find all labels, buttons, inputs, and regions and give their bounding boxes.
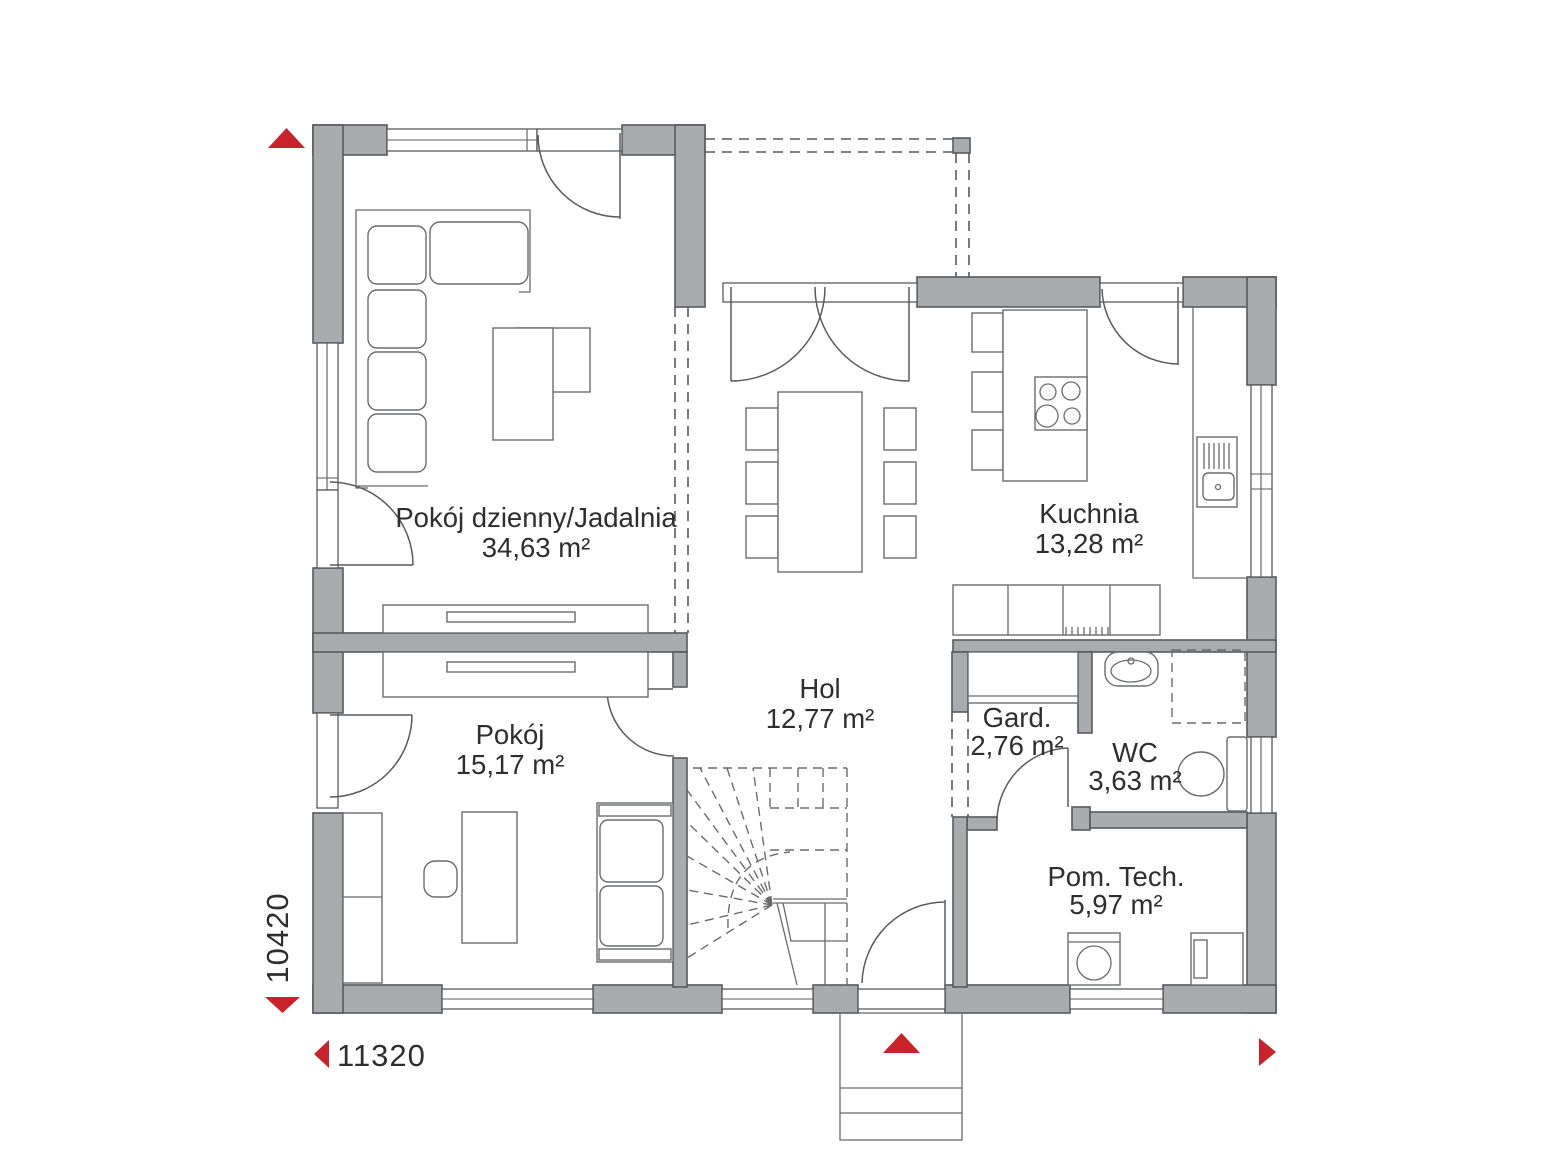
desk — [462, 812, 517, 943]
wall-divider-return — [673, 652, 687, 687]
wall-terrace-side — [675, 125, 705, 307]
toilet-bowl — [1178, 752, 1224, 796]
kitchen-stool-1 — [972, 313, 1003, 352]
wall-nook-bottom — [967, 817, 997, 830]
label-kitchen-name: Kuchnia — [1039, 498, 1139, 529]
wall-right-lower — [1247, 813, 1276, 1013]
sideboard-lower — [383, 652, 648, 697]
living-room-furniture — [356, 210, 648, 697]
desk-chair — [424, 861, 457, 897]
label-room-name: Pokój — [476, 719, 545, 750]
room-wardrobe — [343, 813, 382, 983]
marker-triangle-up-top-left — [268, 128, 305, 148]
opening-room-door-left — [317, 713, 338, 808]
terrace-post — [953, 138, 970, 153]
label-utility-name: Pom. Tech. — [1047, 861, 1184, 892]
stairs-lower-steps — [773, 899, 847, 985]
marker-triangle-left-width — [314, 1040, 329, 1068]
wall-left-upper — [313, 125, 343, 343]
floor-plan-svg: Pokój dzienny/Jadalnia 34,63 m² Kuchnia … — [0, 0, 1556, 1167]
wall-room-hall — [673, 758, 687, 987]
kitchen-sink-basin — [1203, 473, 1234, 500]
wall-closet-left — [952, 652, 968, 712]
dining-table — [778, 392, 862, 572]
porch-steps — [840, 1088, 962, 1113]
wall-right-upper — [1247, 277, 1276, 385]
wall-bottom-door-left — [813, 985, 858, 1013]
marker-triangle-down-bottom-left — [265, 997, 300, 1013]
floor-plan: Pokój dzienny/Jadalnia 34,63 m² Kuchnia … — [0, 0, 1556, 1167]
sideboard-lower-handle — [447, 662, 575, 672]
staircase — [687, 768, 847, 985]
sofa-cushion-4 — [368, 414, 426, 472]
label-wc-name: WC — [1112, 737, 1158, 768]
wall-right-mid — [1247, 577, 1276, 737]
label-living-area: 34,63 m² — [482, 532, 591, 563]
wall-bottom-stairs — [593, 985, 722, 1013]
label-room-area: 15,17 m² — [456, 749, 565, 780]
door-room-hall — [607, 689, 674, 756]
kitchen-base-cabinets — [953, 585, 1160, 635]
opening-french-door — [723, 283, 917, 302]
label-kitchen-area: 13,28 m² — [1035, 528, 1144, 559]
door-entry — [862, 900, 945, 985]
wall-wc-bottom — [1090, 812, 1247, 828]
wall-nook-stub — [1072, 807, 1090, 830]
dining-chair-right-1 — [884, 408, 916, 450]
room-sofa-cushion-1 — [600, 820, 663, 882]
dining-chair-left-1 — [746, 408, 778, 450]
sofa-chaise-cushion — [430, 222, 528, 284]
hob — [1035, 377, 1087, 430]
sofa-cushion-2 — [368, 290, 426, 348]
dining-chair-right-2 — [884, 462, 916, 504]
water-heater-panel — [1194, 940, 1207, 978]
wall-left-lower — [313, 813, 343, 1013]
nook-open-boundary — [952, 712, 968, 817]
label-utility-area: 5,97 m² — [1069, 889, 1162, 920]
room-sofa-armrest-top — [599, 805, 671, 816]
shower — [1172, 650, 1245, 723]
label-closet-name: Gard. — [983, 702, 1052, 733]
opening-terrace-door-left — [317, 490, 338, 568]
coffee-table-front — [493, 328, 553, 440]
wall-living-room-divider — [313, 633, 687, 652]
label-closet-area: 2,76 m² — [970, 730, 1063, 761]
dining-furniture — [746, 392, 916, 572]
kitchen-furniture — [953, 307, 1247, 635]
kitchen-stool-3 — [972, 430, 1003, 470]
marker-triangle-right-width — [1259, 1038, 1276, 1066]
room-furniture — [343, 803, 673, 983]
dining-chair-right-3 — [884, 516, 916, 558]
dining-chair-left-2 — [746, 462, 778, 504]
wall-closet-wc-divider — [1078, 652, 1092, 733]
dimension-width: 11320 — [337, 1038, 426, 1073]
label-hall-name: Hol — [799, 673, 840, 704]
label-living-name: Pokój dzienny/Jadalnia — [395, 502, 677, 533]
stairs-upper-flight-dashed — [687, 768, 847, 985]
room-sofa-cushion-2 — [600, 886, 663, 946]
wall-bottom-door-right — [945, 985, 1070, 1013]
wall-kitchen-bottom — [953, 640, 1276, 652]
toilet-tank — [1227, 737, 1247, 811]
washing-machine — [1068, 933, 1120, 985]
wall-hall-top — [917, 277, 1100, 307]
label-hall-area: 12,77 m² — [766, 703, 875, 734]
terrace-outline — [705, 139, 969, 277]
wall-utility-left — [953, 817, 967, 987]
dimension-height: 10420 — [260, 892, 295, 983]
room-sofa-armrest-bottom — [599, 949, 671, 960]
opening-terrace-door-top — [537, 129, 622, 151]
opening-kitchen-door — [1100, 283, 1183, 302]
entry-door-threshold — [858, 989, 945, 1009]
entry-porch — [840, 1013, 962, 1140]
door-room-left — [330, 715, 412, 797]
sideboard-upper-handle — [447, 612, 575, 622]
living-hall-open-boundary — [675, 307, 688, 633]
wall-bottom-right — [1163, 985, 1276, 1013]
sofa-cushion-1 — [368, 226, 426, 284]
dining-chair-left-3 — [746, 516, 778, 558]
sofa-cushion-3 — [368, 352, 426, 410]
label-wc-area: 3,63 m² — [1088, 765, 1181, 796]
marker-triangle-entrance — [883, 1033, 920, 1053]
kitchen-stool-2 — [972, 372, 1003, 412]
porch-outline — [840, 1013, 962, 1140]
